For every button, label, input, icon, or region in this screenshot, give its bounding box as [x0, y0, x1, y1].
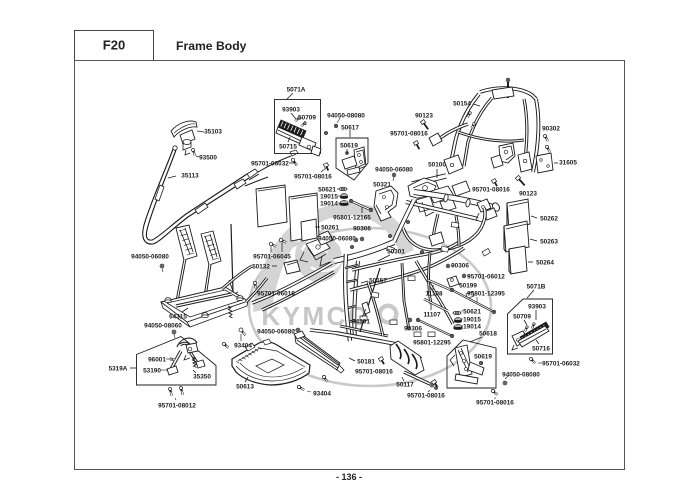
svg-text:50264: 50264	[536, 259, 554, 266]
svg-text:64315: 64315	[169, 313, 187, 320]
svg-text:50157: 50157	[369, 277, 387, 284]
svg-text:Frame Body: Frame Body	[176, 39, 247, 53]
svg-text:50709: 50709	[513, 313, 531, 320]
svg-text:11107: 11107	[423, 311, 441, 318]
svg-text:95701-08016: 95701-08016	[355, 368, 393, 375]
svg-text:95801-12165: 95801-12165	[333, 214, 371, 221]
svg-text:96001: 96001	[148, 356, 166, 363]
svg-text:50301: 50301	[387, 248, 405, 255]
svg-text:95701-06032: 95701-06032	[251, 160, 289, 167]
svg-text:95701-06032: 95701-06032	[542, 360, 580, 367]
svg-text:93404: 93404	[313, 390, 331, 397]
svg-text:19015: 19015	[320, 193, 338, 200]
svg-text:50154: 50154	[453, 100, 471, 107]
svg-text:94050-08080: 94050-08080	[502, 371, 540, 378]
svg-text:50262: 50262	[540, 215, 558, 222]
svg-text:50613: 50613	[236, 383, 254, 390]
svg-text:95701-08016: 95701-08016	[294, 173, 332, 180]
svg-text:50621: 50621	[463, 308, 481, 315]
svg-text:93903: 93903	[528, 303, 546, 310]
svg-text:50715: 50715	[279, 143, 297, 150]
svg-text:50261: 50261	[321, 224, 339, 231]
svg-text:50619: 50619	[474, 353, 492, 360]
svg-text:95701-08012: 95701-08012	[158, 402, 196, 409]
svg-text:50619: 50619	[340, 142, 358, 149]
svg-text:- 136 -: - 136 -	[336, 472, 362, 482]
svg-text:95701-06016: 95701-06016	[257, 290, 295, 297]
svg-text:50199: 50199	[459, 282, 477, 289]
svg-text:31605: 31605	[559, 159, 577, 166]
svg-text:50117: 50117	[396, 381, 414, 388]
svg-text:95701-08016: 95701-08016	[472, 186, 510, 193]
svg-text:90302: 90302	[542, 125, 560, 132]
svg-text:50618: 50618	[479, 330, 497, 337]
svg-text:19014: 19014	[463, 323, 481, 330]
svg-text:95801-12295: 95801-12295	[413, 339, 451, 346]
svg-text:95701-08016: 95701-08016	[476, 399, 514, 406]
svg-text:50263: 50263	[540, 238, 558, 245]
svg-text:5071A: 5071A	[287, 86, 306, 93]
svg-text:53190: 53190	[143, 367, 161, 374]
svg-text:50709: 50709	[298, 114, 316, 121]
svg-text:95701-06045: 95701-06045	[253, 253, 291, 260]
svg-text:94050-06080: 94050-06080	[257, 328, 295, 335]
svg-text:50181: 50181	[357, 358, 375, 365]
svg-text:94050-06080: 94050-06080	[375, 166, 413, 173]
svg-text:95801-12395: 95801-12395	[467, 290, 505, 297]
svg-text:90306: 90306	[353, 225, 371, 232]
svg-text:95701-08016: 95701-08016	[390, 130, 428, 137]
svg-text:93903: 93903	[282, 106, 300, 113]
svg-text:19015: 19015	[463, 316, 481, 323]
svg-text:50100: 50100	[428, 161, 446, 168]
svg-text:50132: 50132	[252, 263, 270, 270]
svg-text:90306: 90306	[451, 262, 469, 269]
svg-text:F20: F20	[103, 38, 125, 53]
svg-text:11108: 11108	[425, 290, 443, 297]
svg-text:35350: 35350	[193, 373, 211, 380]
svg-text:94591: 94591	[352, 318, 370, 325]
svg-text:35113: 35113	[181, 172, 199, 179]
svg-text:90306: 90306	[404, 325, 422, 332]
svg-text:94050-08060: 94050-08060	[144, 322, 182, 329]
svg-text:95701-06012: 95701-06012	[467, 273, 505, 280]
svg-text:35103: 35103	[204, 128, 222, 135]
svg-text:93500: 93500	[199, 154, 217, 161]
svg-text:19014: 19014	[320, 200, 338, 207]
svg-text:94050-06080: 94050-06080	[318, 235, 356, 242]
svg-text:50621: 50621	[318, 186, 336, 193]
svg-text:94050-06080: 94050-06080	[131, 253, 169, 260]
svg-text:50716: 50716	[532, 345, 550, 352]
svg-text:93404: 93404	[234, 342, 252, 349]
svg-text:5319A: 5319A	[109, 365, 128, 372]
svg-text:95701-08016: 95701-08016	[407, 392, 445, 399]
svg-text:5071B: 5071B	[527, 283, 546, 290]
svg-text:94050-08080: 94050-08080	[327, 112, 365, 119]
svg-text:90123: 90123	[415, 112, 433, 119]
svg-text:90123: 90123	[519, 190, 537, 197]
